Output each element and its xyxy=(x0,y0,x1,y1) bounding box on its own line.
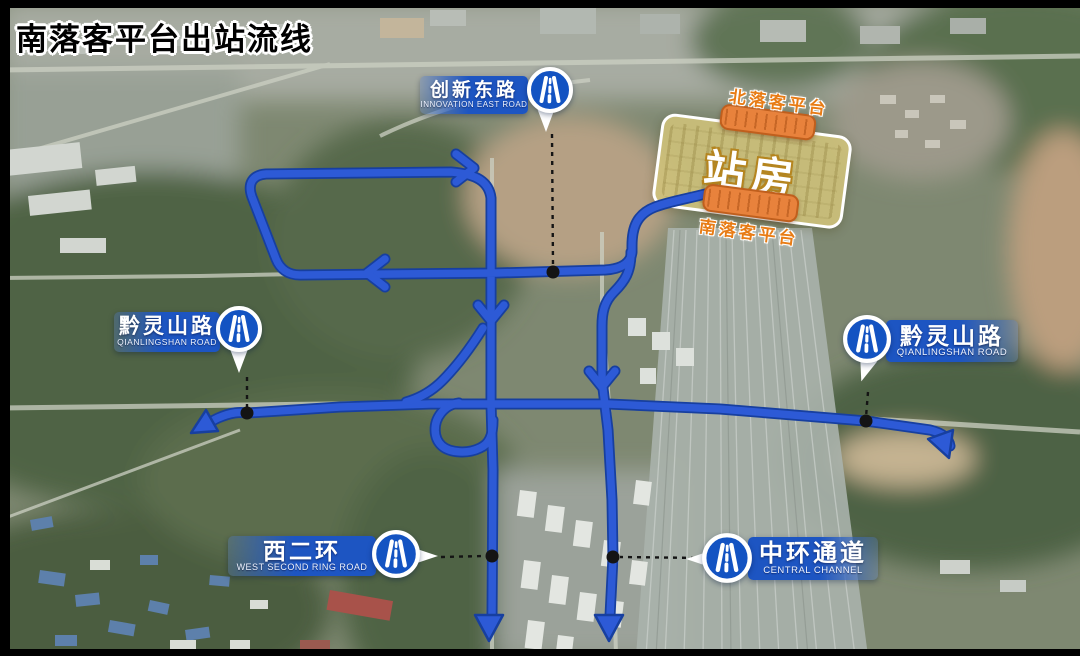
map-canvas: 站房 xyxy=(0,0,1080,656)
road-label-en: QIANLINGSHAN ROAD xyxy=(114,338,220,347)
road-label-innovation-east: 创新东路 INNOVATION EAST ROAD xyxy=(420,66,580,136)
road-label-zh: 中环通道 xyxy=(748,541,878,566)
road-label-qianlingshan-west: 黔灵山路 QIANLINGSHAN ROAD xyxy=(114,305,274,380)
frame-strip-top xyxy=(0,0,1080,8)
frame-strip-bottom xyxy=(0,649,1080,656)
flow-loop-ramp xyxy=(435,403,493,452)
road-label-en: QIANLINGSHAN ROAD xyxy=(886,348,1018,358)
pin-tail xyxy=(853,356,878,384)
road-label-west-second-ring: 西二环 WEST SECOND RING ROAD xyxy=(228,529,448,589)
pin-tail xyxy=(230,349,248,373)
pin-tail xyxy=(686,551,710,567)
road-label-en: CENTRAL CHANNEL xyxy=(748,566,878,576)
chevron-south-b xyxy=(589,371,615,387)
road-label-central-channel: 中环通道 CENTRAL CHANNEL xyxy=(686,532,906,592)
road-label-zh: 创新东路 xyxy=(420,81,528,101)
road-label-qianlingshan-east: 黔灵山路 QIANLINGSHAN ROAD xyxy=(842,314,1042,394)
chevron-south-a xyxy=(478,305,504,321)
road-label-zh: 黔灵山路 xyxy=(114,316,220,338)
arrow-south-b xyxy=(595,615,623,641)
flow-station-south-branch xyxy=(602,252,631,616)
chevron-west xyxy=(367,259,385,287)
arrow-southeast xyxy=(928,430,953,458)
flow-arrowheads xyxy=(191,410,953,641)
arrow-south-a xyxy=(475,615,503,641)
road-label-en: INNOVATION EAST ROAD xyxy=(420,101,528,110)
flow-ramp-west xyxy=(406,328,483,402)
pin-tail xyxy=(537,108,555,132)
frame-strip-left xyxy=(0,0,10,656)
arrow-southwest xyxy=(191,410,218,433)
page-title: 南落客平台出站流线 xyxy=(16,14,313,59)
road-label-zh: 西二环 xyxy=(228,539,376,563)
road-sign-icon xyxy=(215,305,263,353)
chevron-east xyxy=(456,154,474,182)
road-sign-icon xyxy=(526,66,574,114)
anchor-dots xyxy=(241,266,873,564)
road-label-en: WEST SECOND RING ROAD xyxy=(228,563,376,573)
pin-tail xyxy=(414,548,438,564)
road-sign-icon xyxy=(842,314,892,364)
flow-qianlingshan-eastwest xyxy=(200,404,950,446)
road-label-zh: 黔灵山路 xyxy=(886,324,1018,348)
